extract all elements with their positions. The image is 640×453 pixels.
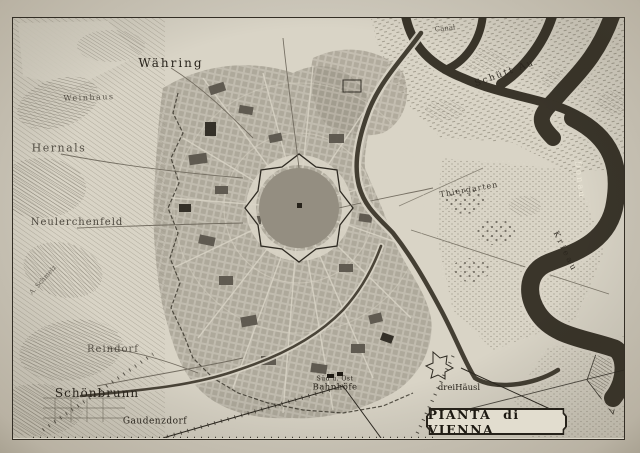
title-cartouche: PIANTA di VIENNA bbox=[426, 408, 567, 435]
vignette-overlay bbox=[13, 18, 624, 438]
title-cartouche-inner: PIANTA di VIENNA bbox=[428, 410, 566, 434]
map-engraving bbox=[13, 18, 624, 438]
map-frame: Währing Weinhaus Hernals Neulerchenfeld … bbox=[12, 17, 625, 440]
scanned-map-page: { "map": { "cartouche_title": "PIANTA di… bbox=[0, 0, 640, 453]
map-title: PIANTA di VIENNA bbox=[428, 407, 566, 437]
